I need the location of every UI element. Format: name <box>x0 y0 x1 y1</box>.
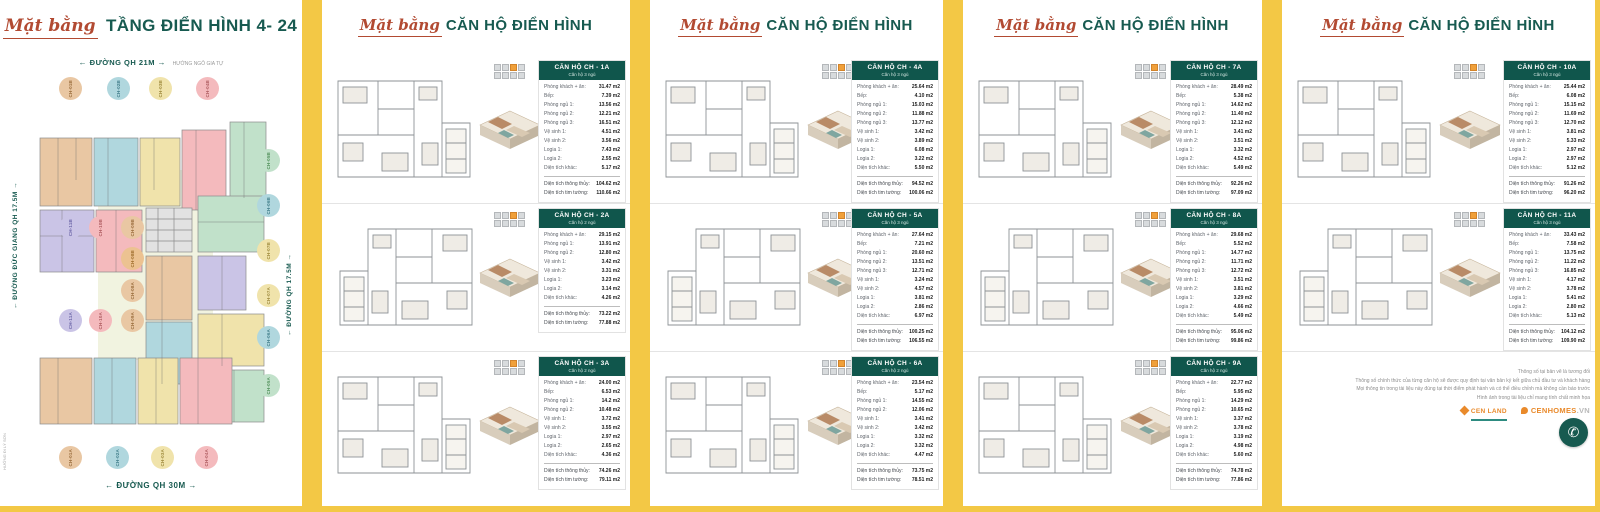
area-row: Logia 1:5.41 m2 <box>1509 294 1585 303</box>
cenland-diamond-icon <box>1459 406 1469 416</box>
area-row: Vệ sinh 1:3.42 m2 <box>544 258 620 267</box>
street-left-note: HƯỚNG ĐI LÝ SƠN <box>2 360 7 470</box>
unit-floor-plan <box>1290 216 1440 338</box>
arrow-left-icon: ← <box>79 58 88 67</box>
street-label-top: ← ĐƯỜNG QH 21M → HƯỚNG NGÔ GIA TỰ <box>0 58 302 67</box>
title-script: Mặt bằng <box>360 16 440 34</box>
area-row: Bếp:7.39 m2 <box>544 92 620 101</box>
area-row: Diện tích khác:5.12 m2 <box>1509 164 1585 173</box>
area-row: Logia 2:2.80 m2 <box>1509 303 1585 312</box>
area-row: Phòng khách + ăn:29.15 m2 <box>544 231 620 240</box>
area-row: Vệ sinh 2:3.89 m2 <box>857 137 933 146</box>
area-total-row: Diện tích tim tường:110.66 m2 <box>544 189 620 198</box>
area-row: Phòng ngủ 1:14.55 m2 <box>857 397 933 406</box>
disclaimer-line: Thông số chính thức của từng căn hộ sẽ đ… <box>1355 377 1590 386</box>
unit-floor-plan <box>330 216 480 338</box>
unit-id: CĂN HỘ CH - 3A <box>541 360 623 367</box>
unit-row-CĂNHỘCH-3A: CĂN HỘ CH - 3ACăn hộ 2 ngủPhòng khách + … <box>322 352 630 499</box>
area-row: Logia 2:3.22 m2 <box>857 155 933 164</box>
area-row: Logia 2:2.86 m2 <box>857 303 933 312</box>
key-plan-mini-map <box>494 360 525 375</box>
key-plan-mini-map <box>1135 360 1166 375</box>
area-row: Diện tích khác:5.13 m2 <box>1509 312 1585 321</box>
area-row: Phòng khách + ăn:22.77 m2 <box>1176 379 1252 388</box>
unit-bubble-CH-03A: CH-03A <box>151 446 174 469</box>
unit-floor-plan <box>971 68 1121 190</box>
area-row: Phòng khách + ăn:25.44 m2 <box>1509 83 1585 92</box>
area-total-row: Diện tích tim tường:97.09 m2 <box>1176 189 1252 198</box>
area-row: Logia 2:4.52 m2 <box>1176 155 1252 164</box>
area-row: Phòng ngủ 2:10.48 m2 <box>544 406 620 415</box>
disclaimer-line: Thông số tại bản vẽ là tương đối <box>1355 368 1590 377</box>
area-row: Phòng ngủ 1:14.2 m2 <box>544 397 620 406</box>
area-row: Logia 1:3.32 m2 <box>857 433 933 442</box>
unit-3d-render <box>478 256 542 314</box>
area-row: Logia 1:3.19 m2 <box>1176 433 1252 442</box>
area-row: Phòng ngủ 1:13.75 m2 <box>1509 249 1585 258</box>
unit-bubble-CH-10A: CH-10A <box>89 309 112 332</box>
unit-row-CĂNHỘCH-11A: CĂN HỘ CH - 11ACăn hộ 3 ngủPhòng khách +… <box>1282 204 1595 352</box>
area-total-row: Diện tích thông thủy:73.75 m2 <box>857 467 933 476</box>
arrow-left-icon: ← <box>105 481 114 490</box>
cenland-logo: CEN LAND <box>1461 400 1507 421</box>
area-row: Diện tích khác:4.47 m2 <box>857 451 933 460</box>
area-row: Phòng khách + ăn:24.00 m2 <box>544 379 620 388</box>
unit-area-table: CĂN HỘ CH - 2ACăn hộ 2 ngủPhòng khách + … <box>538 208 626 333</box>
area-total-row: Diện tích thông thủy:94.52 m2 <box>857 180 933 189</box>
unit-row-CĂNHỘCH-9A: CĂN HỘ CH - 9ACăn hộ 2 ngủPhòng khách + … <box>963 352 1262 499</box>
area-row: Vệ sinh 2:3.81 m2 <box>1176 285 1252 294</box>
unit-row-CĂNHỘCH-2A: CĂN HỘ CH - 2ACăn hộ 2 ngủPhòng khách + … <box>322 204 630 352</box>
area-row: Phòng ngủ 2:11.22 m2 <box>1509 258 1585 267</box>
area-row: Phòng khách + ăn:25.64 m2 <box>857 83 933 92</box>
unit-id: CĂN HỘ CH - 4A <box>854 64 936 71</box>
area-row: Diện tích khác:5.49 m2 <box>1176 312 1252 321</box>
key-plan-mini-map <box>822 64 853 79</box>
street-label-left: ← ĐƯỜNG ĐỨC GIANG QH 17.5M → <box>12 130 19 360</box>
key-plan-mini-map <box>1454 212 1485 227</box>
area-row: Vệ sinh 2:3.78 m2 <box>1509 285 1585 294</box>
area-row: Logia 2:2.65 m2 <box>544 442 620 451</box>
area-row: Bếp:6.08 m2 <box>1509 92 1585 101</box>
area-row: Bếp:4.10 m2 <box>857 92 933 101</box>
area-row: Logia 1:3.29 m2 <box>1176 294 1252 303</box>
unit-floor-plan <box>971 364 1121 486</box>
unit-id: CĂN HỘ CH - 9A <box>1173 360 1255 367</box>
area-row: Phòng ngủ 2:13.51 m2 <box>857 258 933 267</box>
area-row: Bếp:7.58 m2 <box>1509 240 1585 249</box>
area-row: Diện tích khác:5.49 m2 <box>1176 164 1252 173</box>
unit-bubble-CH-04A: CH-04A <box>195 446 218 469</box>
unit-area-table: CĂN HỘ CH - 11ACăn hộ 3 ngủPhòng khách +… <box>1503 208 1591 351</box>
area-row: Phòng ngủ 1:15.15 m2 <box>1509 101 1585 110</box>
unit-area-table: CĂN HỘ CH - 3ACăn hộ 2 ngủPhòng khách + … <box>538 356 626 490</box>
area-row: Vệ sinh 2:3.56 m2 <box>544 137 620 146</box>
street-label-right: ← ĐƯỜNG QH 17.5M → <box>286 210 293 380</box>
key-plan-mini-map <box>822 360 853 375</box>
area-row: Phòng khách + ăn:29.68 m2 <box>1176 231 1252 240</box>
unit-floor-plan <box>658 68 808 190</box>
area-row: Phòng khách + ăn:33.43 m2 <box>1509 231 1585 240</box>
area-total-row: Diện tích tim tường:78.51 m2 <box>857 476 933 485</box>
area-row: Diện tích khác:4.36 m2 <box>544 451 620 460</box>
unit-bubble-CH-04B: CH-04B <box>196 77 219 100</box>
area-row: Logia 2:3.32 m2 <box>857 442 933 451</box>
unit-bubble-CH-09A: CH-09A <box>121 309 144 332</box>
title-main: CĂN HỘ ĐIỂN HÌNH <box>1408 17 1554 34</box>
unit-area-table: CĂN HỘ CH - 5ACăn hộ 3 ngủPhòng khách + … <box>851 208 939 351</box>
area-row: Bếp:5.95 m2 <box>1176 388 1252 397</box>
area-row: Phòng ngủ 1:13.91 m2 <box>544 240 620 249</box>
area-total-row: Diện tích tim tường:77.88 m2 <box>544 319 620 328</box>
area-row: Phòng ngủ 1:20.60 m2 <box>857 249 933 258</box>
area-row: Vệ sinh 2:5.33 m2 <box>1509 137 1585 146</box>
unit-bubble-CH-10B: CH-10B <box>89 216 112 239</box>
unit-id: CĂN HỘ CH - 11A <box>1506 212 1588 219</box>
area-total-row: Diện tích thông thủy:74.26 m2 <box>544 467 620 476</box>
unit-subtitle: Căn hộ 2 ngủ <box>541 220 623 225</box>
arrow-icon: → <box>286 254 293 261</box>
area-row: Vệ sinh 1:3.72 m2 <box>544 415 620 424</box>
unit-row-CĂNHỘCH-1A: CĂN HỘ CH - 1ACăn hộ 3 ngủPhòng khách + … <box>322 56 630 204</box>
brochure-sheet: Mặt bằng TẦNG ĐIỂN HÌNH 4- 24 ← ĐƯỜNG QH… <box>0 0 1600 512</box>
unit-id: CĂN HỘ CH - 7A <box>1173 64 1255 71</box>
area-row: Logia 2:4.66 m2 <box>1176 303 1252 312</box>
key-plan-mini-map <box>1135 64 1166 79</box>
area-row: Vệ sinh 1:3.24 m2 <box>857 276 933 285</box>
key-plan-mini-map <box>1454 64 1485 79</box>
unit-subtitle: Căn hộ 3 ngủ <box>1506 220 1588 225</box>
area-row: Logia 1:3.32 m2 <box>1176 146 1252 155</box>
area-row: Phòng khách + ăn:31.47 m2 <box>544 83 620 92</box>
unit-bubble-CH-08B: CH-08B <box>121 247 144 270</box>
area-row: Bếp:7.21 m2 <box>857 240 933 249</box>
unit-id: CĂN HỘ CH - 6A <box>854 360 936 367</box>
unit-subtitle: Căn hộ 3 ngủ <box>1173 220 1255 225</box>
area-row: Bếp:5.38 m2 <box>1176 92 1252 101</box>
unit-3d-render <box>478 108 542 166</box>
area-row: Phòng ngủ 2:10.65 m2 <box>1176 406 1252 415</box>
area-row: Phòng ngủ 2:11.40 m2 <box>1176 110 1252 119</box>
area-row: Phòng ngủ 2:11.88 m2 <box>857 110 933 119</box>
unit-floor-plan <box>658 216 808 338</box>
area-row: Logia 1:2.97 m2 <box>1509 146 1585 155</box>
cenland-logo-text: CEN LAND <box>1471 408 1507 415</box>
area-row: Vệ sinh 2:3.78 m2 <box>1176 424 1252 433</box>
arrow-right-icon: → <box>188 481 197 490</box>
unit-bubble-CH-01A: CH-01A <box>59 446 82 469</box>
cenhomes-flame-icon <box>1521 407 1528 414</box>
arrow-icon: → <box>12 181 19 188</box>
arrow-icon: ← <box>12 302 19 309</box>
title-script: Mặt bằng <box>1322 16 1402 34</box>
unit-subtitle: Căn hộ 3 ngủ <box>854 72 936 77</box>
unit-bubble-CH-11B: CH-11B <box>59 216 82 239</box>
area-total-row: Diện tích tim tường:109.90 m2 <box>1509 337 1585 346</box>
area-row: Phòng ngủ 3:12.71 m2 <box>857 267 933 276</box>
area-total-row: Diện tích tim tường:106.55 m2 <box>857 337 933 346</box>
area-row: Phòng ngủ 1:13.56 m2 <box>544 101 620 110</box>
area-total-row: Diện tích tim tường:77.86 m2 <box>1176 476 1252 485</box>
arrow-icon: ← <box>286 329 293 336</box>
unit-row-CĂNHỘCH-6A: CĂN HỘ CH - 6ACăn hộ 2 ngủPhòng khách + … <box>650 352 943 499</box>
area-row: Logia 1:2.97 m2 <box>544 433 620 442</box>
title-main: CĂN HỘ ĐIỂN HÌNH <box>766 17 912 34</box>
area-total-row: Diện tích thông thủy:104.62 m2 <box>544 180 620 189</box>
panel-title: Mặt bằngCĂN HỘ ĐIỂN HÌNH <box>963 16 1262 35</box>
area-row: Bếp:6.53 m2 <box>544 388 620 397</box>
cenland-logo-bar <box>1471 419 1507 421</box>
unit-id: CĂN HỘ CH - 5A <box>854 212 936 219</box>
area-row: Phòng ngủ 1:14.62 m2 <box>1176 101 1252 110</box>
unit-row-CĂNHỘCH-5A: CĂN HỘ CH - 5ACăn hộ 3 ngủPhòng khách + … <box>650 204 943 352</box>
area-row: Vệ sinh 2:3.31 m2 <box>544 267 620 276</box>
key-plan-mini-map <box>494 212 525 227</box>
area-row: Phòng ngủ 2:11.71 m2 <box>1176 258 1252 267</box>
title-main: CĂN HỘ ĐIỂN HÌNH <box>446 17 592 34</box>
unit-bubble-CH-03B: CH-03B <box>149 77 172 100</box>
unit-bubble-CH-02A: CH-02A <box>106 446 129 469</box>
area-row: Vệ sinh 1:3.42 m2 <box>857 128 933 137</box>
unit-id: CĂN HỘ CH - 1A <box>541 64 623 71</box>
unit-3d-render <box>1438 256 1502 314</box>
unit-bubble-CH-02B: CH-02B <box>107 77 130 100</box>
unit-subtitle: Căn hộ 2 ngủ <box>541 368 623 373</box>
area-row: Vệ sinh 2:3.42 m2 <box>857 424 933 433</box>
area-row: Phòng khách + ăn:23.54 m2 <box>857 379 933 388</box>
area-row: Logia 1:7.43 m2 <box>544 146 620 155</box>
unit-bubble-CH-01B: CH-01B <box>59 77 82 100</box>
unit-row-CĂNHỘCH-8A: CĂN HỘ CH - 8ACăn hộ 3 ngủPhòng khách + … <box>963 204 1262 352</box>
area-row: Logia 2:4.98 m2 <box>1176 442 1252 451</box>
area-row: Phòng ngủ 3:12.70 m2 <box>1509 119 1585 128</box>
unit-bubble-CH-06B: CH-06B <box>257 194 280 217</box>
area-row: Vệ sinh 2:4.57 m2 <box>857 285 933 294</box>
unit-row-CĂNHỘCH-4A: CĂN HỘ CH - 4ACăn hộ 3 ngủPhòng khách + … <box>650 56 943 204</box>
area-total-row: Diện tích thông thủy:92.26 m2 <box>1176 180 1252 189</box>
title-script: Mặt bằng <box>5 16 96 36</box>
area-total-row: Diện tích tim tường:100.06 m2 <box>857 189 933 198</box>
area-total-row: Diện tích thông thủy:104.12 m2 <box>1509 328 1585 337</box>
area-row: Bếp:5.17 m2 <box>857 388 933 397</box>
area-row: Diện tích khác:6.97 m2 <box>857 312 933 321</box>
contact-phone-badge[interactable]: ✆ <box>1559 418 1588 447</box>
area-row: Bếp:5.52 m2 <box>1176 240 1252 249</box>
area-row: Diện tích khác:5.17 m2 <box>544 164 620 173</box>
unit-bubble-CH-06A: CH-06A <box>257 326 280 349</box>
unit-floor-plan <box>971 216 1121 338</box>
area-row: Phòng ngủ 3:13.77 m2 <box>857 119 933 128</box>
street-top-note: HƯỚNG NGÔ GIA TỰ <box>173 61 224 67</box>
area-total-row: Diện tích tim tường:99.86 m2 <box>1176 337 1252 346</box>
area-row: Phòng ngủ 3:12.12 m2 <box>1176 119 1252 128</box>
unit-subtitle: Căn hộ 2 ngủ <box>1173 368 1255 373</box>
unit-id: CĂN HỘ CH - 10A <box>1506 64 1588 71</box>
area-row: Vệ sinh 1:3.51 m2 <box>1176 276 1252 285</box>
area-row: Phòng ngủ 1:14.77 m2 <box>1176 249 1252 258</box>
unit-3d-render <box>1438 108 1502 166</box>
area-total-row: Diện tích tim tường:96.20 m2 <box>1509 189 1585 198</box>
unit-row-CĂNHỘCH-7A: CĂN HỘ CH - 7ACăn hộ 3 ngủPhòng khách + … <box>963 56 1262 204</box>
disclaimer-text: Thông số tại bản vẽ là tương đối Thông s… <box>1355 368 1590 402</box>
unit-bubble-CH-09B: CH-09B <box>121 216 144 239</box>
unit-subtitle: Căn hộ 3 ngủ <box>854 220 936 225</box>
unit-bubble-CH-05A: CH-05A <box>257 374 280 397</box>
unit-bubble-CH-05B: CH-05B <box>257 149 280 172</box>
title-script: Mặt bằng <box>680 16 760 34</box>
area-row: Phòng ngủ 3:16.51 m2 <box>544 119 620 128</box>
unit-bubble-CH-11A: CH-11A <box>59 309 82 332</box>
unit-floor-plan <box>658 364 808 486</box>
area-row: Phòng ngủ 2:11.69 m2 <box>1509 110 1585 119</box>
area-row: Phòng ngủ 1:14.29 m2 <box>1176 397 1252 406</box>
area-row: Vệ sinh 1:3.41 m2 <box>1176 128 1252 137</box>
arrow-right-icon: → <box>158 58 167 67</box>
unit-subtitle: Căn hộ 3 ngủ <box>541 72 623 77</box>
area-row: Vệ sinh 2:3.55 m2 <box>544 424 620 433</box>
unit-area-table: CĂN HỘ CH - 4ACăn hộ 3 ngủPhòng khách + … <box>851 60 939 203</box>
apartment-panel-4: Mặt bằngCĂN HỘ ĐIỂN HÌNH CĂN HỘ CH - 10A… <box>1282 0 1595 506</box>
area-row: Diện tích khác:5.60 m2 <box>1176 451 1252 460</box>
area-row: Vệ sinh 1:3.41 m2 <box>857 415 933 424</box>
unit-floor-plan <box>1290 68 1440 190</box>
disclaimer-line: Mọi thông tin trong tài liệu này đúng tạ… <box>1355 385 1590 394</box>
title-main: TẦNG ĐIỂN HÌNH 4- 24 <box>106 16 297 35</box>
key-plan-mini-map <box>494 64 525 79</box>
panel-title: Mặt bằngCĂN HỘ ĐIỂN HÌNH <box>1282 16 1595 35</box>
area-row: Phòng ngủ 3:12.72 m2 <box>1176 267 1252 276</box>
area-row: Phòng khách + ăn:28.49 m2 <box>1176 83 1252 92</box>
phone-icon: ✆ <box>1568 424 1580 441</box>
area-row: Phòng ngủ 2:12.80 m2 <box>544 249 620 258</box>
area-row: Logia 1:6.08 m2 <box>857 146 933 155</box>
unit-bubble-CH-07A: CH-07A <box>257 284 280 307</box>
area-row: Phòng ngủ 1:15.03 m2 <box>857 101 933 110</box>
area-row: Vệ sinh 1:3.37 m2 <box>1176 415 1252 424</box>
area-total-row: Diện tích thông thủy:91.26 m2 <box>1509 180 1585 189</box>
unit-floor-plan <box>330 364 480 486</box>
area-row: Phòng ngủ 2:12.21 m2 <box>544 110 620 119</box>
unit-subtitle: Căn hộ 3 ngủ <box>1506 72 1588 77</box>
area-row: Phòng khách + ăn:27.64 m2 <box>857 231 933 240</box>
area-total-row: Diện tích thông thủy:100.25 m2 <box>857 328 933 337</box>
unit-area-table: CĂN HỘ CH - 1ACăn hộ 3 ngủPhòng khách + … <box>538 60 626 203</box>
area-row: Vệ sinh 2:3.51 m2 <box>1176 137 1252 146</box>
master-plan-panel: Mặt bằng TẦNG ĐIỂN HÌNH 4- 24 ← ĐƯỜNG QH… <box>0 0 302 506</box>
unit-3d-render <box>478 404 542 462</box>
area-row: Diện tích khác:4.26 m2 <box>544 294 620 303</box>
area-total-row: Diện tích thông thủy:73.22 m2 <box>544 310 620 319</box>
area-row: Logia 2:2.97 m2 <box>1509 155 1585 164</box>
panel-title: Mặt bằngCĂN HỘ ĐIỂN HÌNH <box>650 16 943 35</box>
area-row: Logia 1:3.81 m2 <box>857 294 933 303</box>
unit-area-table: CĂN HỘ CH - 7ACăn hộ 3 ngủPhòng khách + … <box>1170 60 1258 203</box>
unit-id: CĂN HỘ CH - 8A <box>1173 212 1255 219</box>
area-row: Logia 2:3.14 m2 <box>544 285 620 294</box>
area-total-row: Diện tích thông thủy:74.78 m2 <box>1176 467 1252 476</box>
area-row: Vệ sinh 1:4.17 m2 <box>1509 276 1585 285</box>
unit-area-table: CĂN HỘ CH - 8ACăn hộ 3 ngủPhòng khách + … <box>1170 208 1258 351</box>
cenhomes-logo: CENHOMES.VN <box>1521 406 1590 415</box>
area-row: Vệ sinh 1:4.51 m2 <box>544 128 620 137</box>
title-script: Mặt bằng <box>996 16 1076 34</box>
unit-area-table: CĂN HỘ CH - 6ACăn hộ 2 ngủPhòng khách + … <box>851 356 939 490</box>
area-row: Logia 1:3.23 m2 <box>544 276 620 285</box>
unit-row-CĂNHỘCH-10A: CĂN HỘ CH - 10ACăn hộ 3 ngủPhòng khách +… <box>1282 56 1595 204</box>
unit-area-table: CĂN HỘ CH - 10ACăn hộ 3 ngủPhòng khách +… <box>1503 60 1591 203</box>
street-label-bottom: ← ĐƯỜNG QH 30M → <box>0 481 302 490</box>
area-total-row: Diện tích tim tường:79.11 m2 <box>544 476 620 485</box>
master-plan-title: Mặt bằng TẦNG ĐIỂN HÌNH 4- 24 <box>0 16 302 36</box>
apartment-panel-3: Mặt bằngCĂN HỘ ĐIỂN HÌNH CĂN HỘ CH - 7AC… <box>963 0 1262 506</box>
unit-bubble-CH-08A: CH-08A <box>121 279 144 302</box>
master-floor-plan <box>38 110 268 438</box>
unit-id: CĂN HỘ CH - 2A <box>541 212 623 219</box>
unit-subtitle: Căn hộ 2 ngủ <box>854 368 936 373</box>
area-row: Diện tích khác:5.50 m2 <box>857 164 933 173</box>
apartment-panel-2: Mặt bằngCĂN HỘ ĐIỂN HÌNH CĂN HỘ CH - 4AC… <box>650 0 943 506</box>
unit-floor-plan <box>330 68 480 190</box>
title-main: CĂN HỘ ĐIỂN HÌNH <box>1082 17 1228 34</box>
apartment-panel-1: Mặt bằngCĂN HỘ ĐIỂN HÌNH CĂN HỘ CH - 1AC… <box>322 0 630 506</box>
area-row: Phòng ngủ 2:12.06 m2 <box>857 406 933 415</box>
unit-subtitle: Căn hộ 3 ngủ <box>1173 72 1255 77</box>
key-plan-mini-map <box>1135 212 1166 227</box>
panel-title: Mặt bằngCĂN HỘ ĐIỂN HÌNH <box>322 16 630 35</box>
area-row: Logia 2:2.55 m2 <box>544 155 620 164</box>
unit-bubble-CH-07B: CH-07B <box>257 239 280 262</box>
unit-area-table: CĂN HỘ CH - 9ACăn hộ 2 ngủPhòng khách + … <box>1170 356 1258 490</box>
area-total-row: Diện tích thông thủy:95.06 m2 <box>1176 328 1252 337</box>
key-plan-mini-map <box>822 212 853 227</box>
area-row: Phòng ngủ 3:16.85 m2 <box>1509 267 1585 276</box>
area-row: Vệ sinh 1:3.81 m2 <box>1509 128 1585 137</box>
